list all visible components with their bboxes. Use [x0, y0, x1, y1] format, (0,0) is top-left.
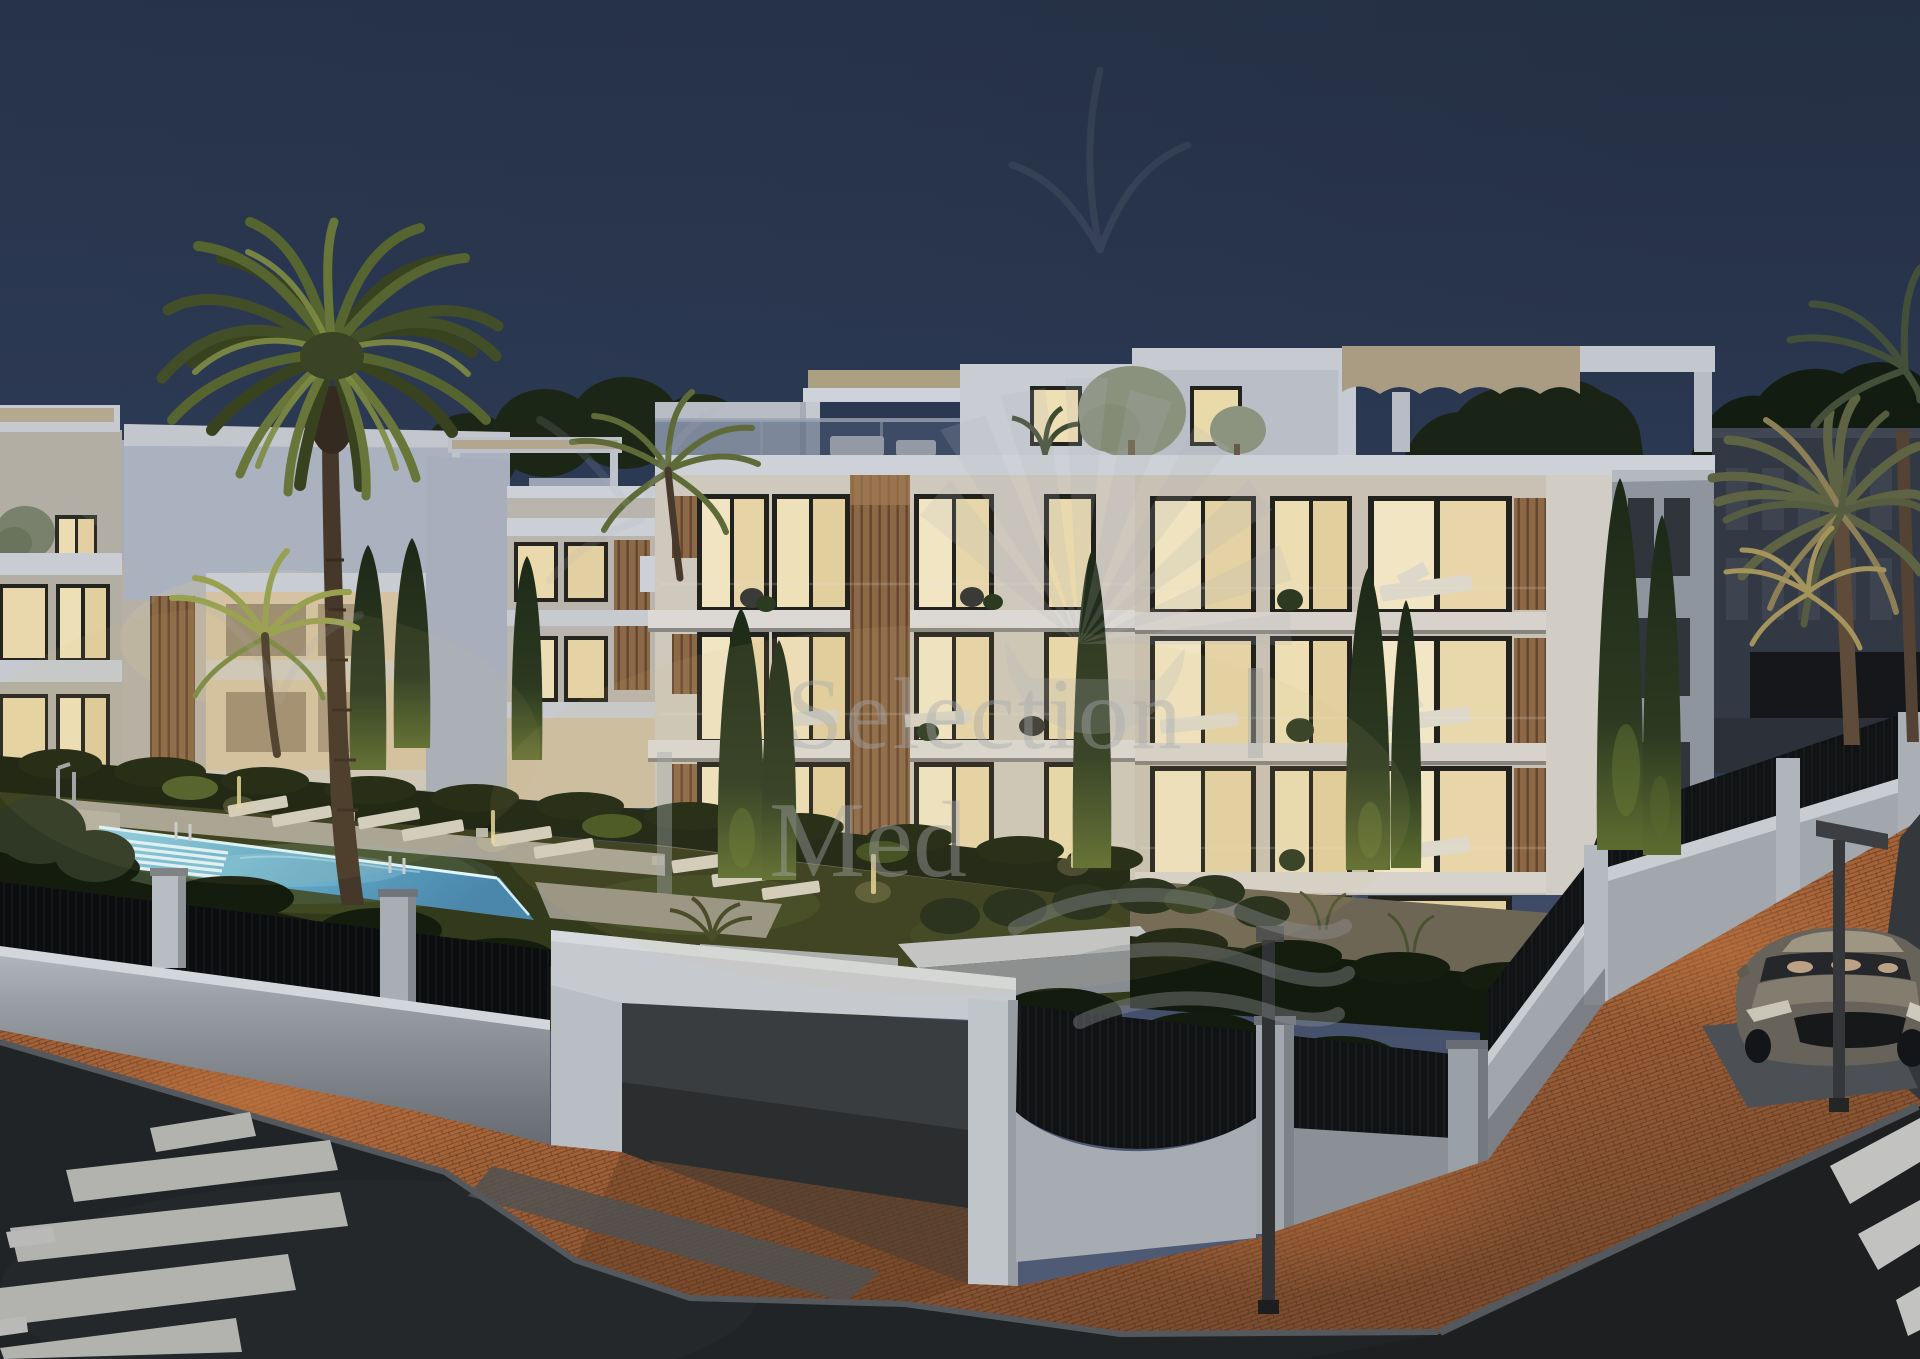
svg-text:Selection: Selection: [786, 658, 1184, 771]
svg-text:Med: Med: [769, 781, 967, 900]
